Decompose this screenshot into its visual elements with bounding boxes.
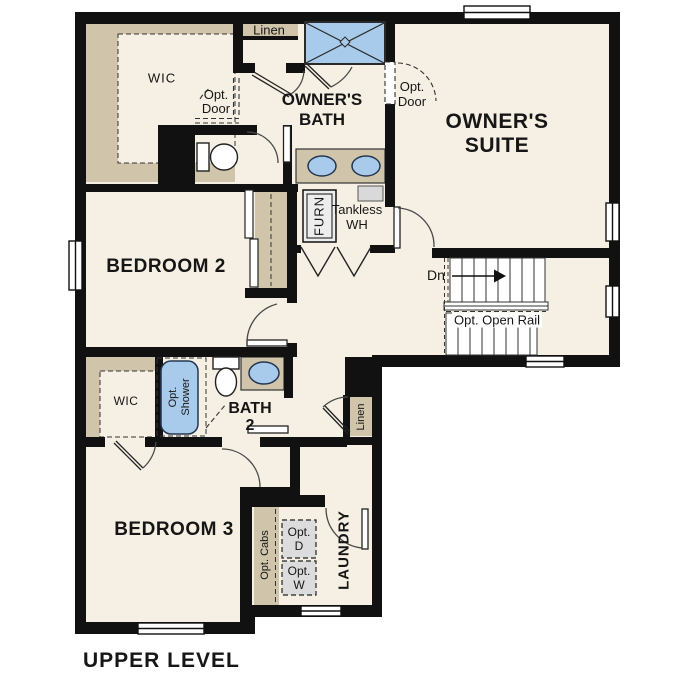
opt-door-suite-label: Opt.Door (398, 79, 426, 109)
tankless-wh-label: TanklessWH (332, 202, 383, 232)
stairs-down-label: Dn (427, 267, 445, 283)
linen-upper-label: Linen (253, 23, 285, 38)
bath2-label: BATH2 (228, 400, 271, 434)
opt-open-rail-label: Opt. Open Rail (452, 313, 542, 328)
linen-lower-label: Linen (355, 404, 367, 431)
stairs-icon (444, 258, 548, 355)
owners-suite-label: OWNER'SSUITE (446, 110, 549, 158)
page-title: UPPER LEVEL (83, 649, 240, 673)
toilet-icon (197, 143, 238, 171)
bedroom3-label: BEDROOM 3 (114, 519, 234, 541)
floor-plan: WIC Linen Opt.Door OWNER'SBATH Opt.Door … (0, 0, 687, 687)
wic-upper-label: WIC (148, 71, 176, 86)
window-icon (606, 286, 619, 317)
opt-washer-label: Opt.W (288, 564, 311, 592)
sink-icon (249, 362, 279, 384)
opt-shower-label: Opt.Shower (167, 378, 193, 415)
furnace-label: FURN (312, 196, 327, 236)
window-icon (301, 606, 341, 616)
opt-door-wic-label: Opt.Door (202, 88, 230, 116)
bedroom2-label: BEDROOM 2 (106, 256, 226, 278)
opt-dryer-label: Opt.D (288, 525, 311, 553)
window-icon (464, 6, 530, 19)
owners-bath-label: OWNER'SBATH (282, 90, 363, 130)
toilet-icon (213, 357, 239, 396)
tankless-water-heater-icon (358, 186, 383, 201)
shower-icon (305, 22, 385, 64)
laundry-label: LAUNDRY (336, 510, 353, 590)
window-icon (138, 623, 204, 634)
window-icon (69, 241, 82, 290)
opt-cabs-label: Opt. Cabs (259, 530, 271, 580)
window-icon (606, 203, 619, 241)
wic-lower-label: WIC (114, 394, 139, 408)
window-icon (526, 356, 564, 367)
